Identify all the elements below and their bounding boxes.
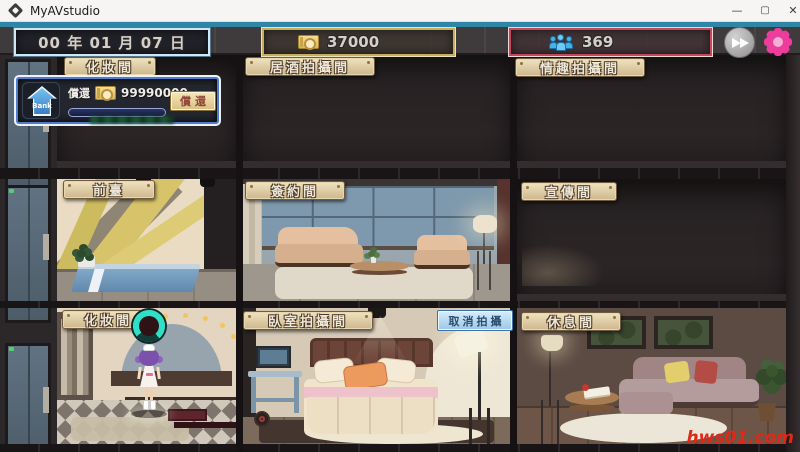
floor-slab <box>0 301 800 308</box>
sofa-chaise <box>619 392 673 414</box>
fans-value: 369 <box>582 33 613 51</box>
character-dress <box>140 365 158 387</box>
makeup-timer-ring <box>133 310 165 342</box>
wall-divider <box>510 55 517 452</box>
vase <box>371 256 376 263</box>
repay-label: 償還 <box>68 85 90 101</box>
room-sign-makeup-upper[interactable]: 化妝間 <box>64 57 156 76</box>
watermark: hws01.com <box>686 428 794 448</box>
fans-people-icon <box>549 34 573 51</box>
window <box>654 316 713 349</box>
room-sign-promotion[interactable]: 宣傳間 <box>521 182 617 201</box>
studio-light-tripod <box>478 352 481 420</box>
close-button[interactable]: ✕ <box>778 0 800 21</box>
money-panel: 37000 <box>262 28 455 56</box>
money-icon <box>298 35 319 49</box>
date-panel: 00 年 01 月 07 日 <box>14 28 210 56</box>
money-value: 37000 <box>327 33 379 51</box>
minimize-button[interactable]: — <box>722 0 752 21</box>
desk-shelf <box>251 398 299 402</box>
window-titlebar: MyAVstudio — ▢ ✕ <box>0 0 800 22</box>
room-sign-signing[interactable]: 簽約間 <box>245 181 345 200</box>
bank-loan-panel: Bank 償還 99990000 償還 <box>16 77 219 124</box>
character-leg <box>145 387 148 401</box>
room-sign-izakaya-shoot[interactable]: 居酒拍攝間 <box>245 57 375 76</box>
bank-icon-label: Bank <box>23 102 61 110</box>
floor-slab <box>0 444 800 452</box>
window-accent-band <box>0 22 800 27</box>
game-stage: 化妝間 居酒拍攝間 情趣拍攝間 前臺 簽約間 宣傳間 化妝間 臥室拍攝間 休息間… <box>0 27 800 452</box>
bank-arrow-fill <box>29 88 55 114</box>
obscured-green-text <box>90 116 174 124</box>
settings-gear-button[interactable] <box>760 27 796 60</box>
coffee-table <box>350 261 409 271</box>
cancel-shoot-button[interactable]: 取消拍攝 <box>437 310 513 331</box>
counter-stripe <box>88 269 104 292</box>
fans-panel: 369 <box>509 28 712 56</box>
sofa-seat <box>414 250 470 270</box>
character-sash <box>146 373 153 376</box>
fast-forward-icon <box>740 38 749 48</box>
elevator-indicator <box>9 189 14 193</box>
floor-lamp-shade <box>473 215 497 233</box>
building-right-wall <box>786 55 800 452</box>
character-arm <box>156 367 161 379</box>
speaker <box>254 411 270 427</box>
gear-hole <box>773 37 783 47</box>
elevator-indicator <box>9 347 14 351</box>
character-boot <box>150 400 156 410</box>
character-boot <box>143 400 149 410</box>
character-shadow <box>131 410 167 418</box>
money-icon <box>95 86 116 100</box>
desk-leg <box>294 377 299 412</box>
room-sign-bedroom-shoot[interactable]: 臥室拍攝間 <box>243 311 373 330</box>
desk-top <box>248 371 301 378</box>
nurse-hat <box>143 344 155 351</box>
desk-leg <box>251 377 256 412</box>
sofa-seat <box>275 244 363 267</box>
apple <box>582 384 589 391</box>
vanity-counter <box>111 371 233 386</box>
floor-lamp-shade <box>541 335 563 351</box>
repay-button[interactable]: 償還 <box>170 91 216 111</box>
room-sign-lingerie-shoot[interactable]: 情趣拍攝間 <box>515 58 645 77</box>
elevator-door <box>5 343 51 452</box>
red-pillow <box>693 360 717 384</box>
character-leg <box>150 387 153 401</box>
character-arm <box>137 367 142 379</box>
room-sign-reception[interactable]: 前臺 <box>63 180 155 199</box>
bank-button[interactable]: Bank <box>22 82 60 119</box>
lamp-glow <box>522 242 608 286</box>
floor-slab <box>0 168 800 179</box>
floor-lamp-tripod <box>549 352 551 406</box>
bench <box>168 409 207 421</box>
blanket <box>307 397 435 434</box>
computer-monitor <box>256 346 291 368</box>
actress-character[interactable] <box>137 346 161 418</box>
room-sign-rest[interactable]: 休息間 <box>521 312 621 331</box>
ceiling-spotlight <box>200 179 215 187</box>
reception-counter <box>71 264 201 292</box>
unity-app-icon <box>8 3 24 19</box>
bank-arrow-icon <box>27 86 57 116</box>
maximize-button[interactable]: ▢ <box>750 0 780 21</box>
plant <box>766 365 778 377</box>
date-value: 00 年 01 月 07 日 <box>38 32 186 53</box>
window-title: MyAVstudio <box>30 4 100 18</box>
plant <box>77 250 86 258</box>
wall-divider <box>236 55 243 452</box>
fast-forward-button[interactable] <box>724 27 755 58</box>
rug <box>275 267 473 299</box>
